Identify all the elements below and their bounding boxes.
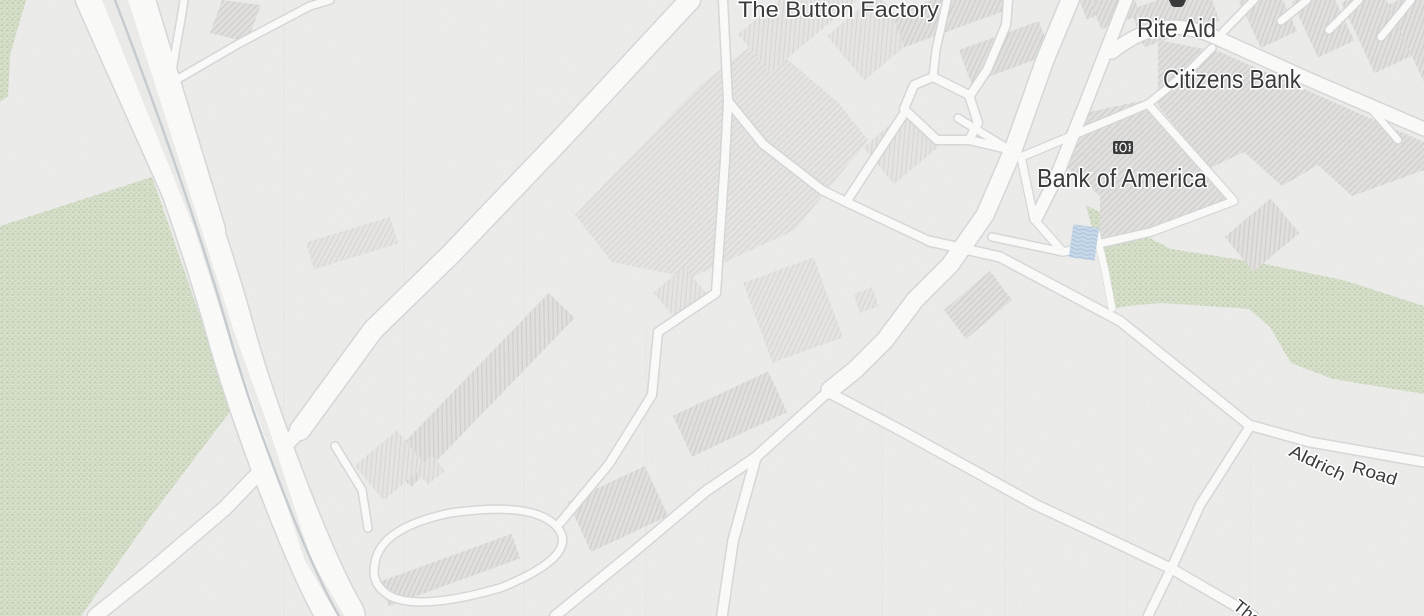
svg-text:Citizens Bank: Citizens Bank	[1163, 64, 1302, 94]
svg-text:Bank of America: Bank of America	[1037, 163, 1207, 193]
svg-text:Rite Aid: Rite Aid	[1137, 13, 1216, 43]
svg-text:The Button Factory: The Button Factory	[738, 0, 939, 22]
